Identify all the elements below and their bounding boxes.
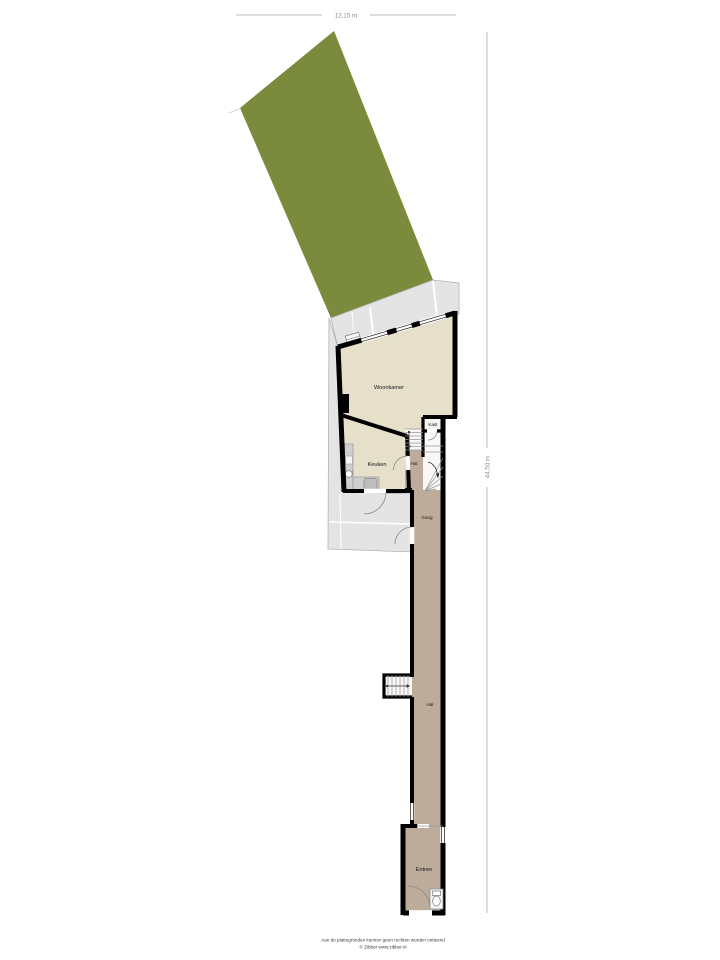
room-label-keuken: Keuken: [368, 462, 387, 468]
stove-icon: [364, 479, 377, 490]
room-label-hal: Hal: [411, 461, 418, 466]
floor-plan-page: 12,15 m 44,50 m: [0, 0, 720, 960]
toilet-cistern: [433, 891, 441, 896]
footer-copyright: © Zibber www.zibber.nl: [359, 944, 406, 950]
footer-disclaimer: Aan de plattegronden kunnen geen rechten…: [321, 938, 445, 943]
room-label-entree: Entree: [416, 867, 432, 873]
width-dimension-line: 12,15 m: [236, 13, 456, 20]
garden-grass-texture: [240, 31, 433, 318]
chimney: [339, 394, 349, 413]
width-dimension-label: 12,15 m: [335, 13, 357, 20]
room-label-woonkamer: Woonkamer: [374, 385, 404, 391]
room-hal2-corridor: [412, 545, 443, 824]
toilet-bowl: [433, 896, 441, 906]
room-label-hal2: Hal: [427, 702, 434, 707]
sink-icon: [345, 471, 352, 478]
room-label-kast: Kast: [428, 422, 438, 427]
staircase-winder-floor: [423, 431, 443, 492]
toilet-icon: [430, 889, 443, 909]
counter-appliance: [346, 456, 353, 464]
hal-keuken-door-gap: [408, 456, 409, 470]
boundary-line: [229, 108, 241, 113]
height-dimension-line: 44,50 m: [485, 32, 492, 913]
garden-area: [229, 31, 433, 318]
footer: Aan de plattegronden kunnen geen rechten…: [321, 938, 445, 950]
height-dimension-label: 44,50 m: [485, 456, 492, 478]
room-label-gang: Gang: [421, 515, 433, 520]
floor-plan-canvas: 12,15 m 44,50 m: [0, 0, 720, 960]
staircase-straight: [405, 429, 423, 450]
